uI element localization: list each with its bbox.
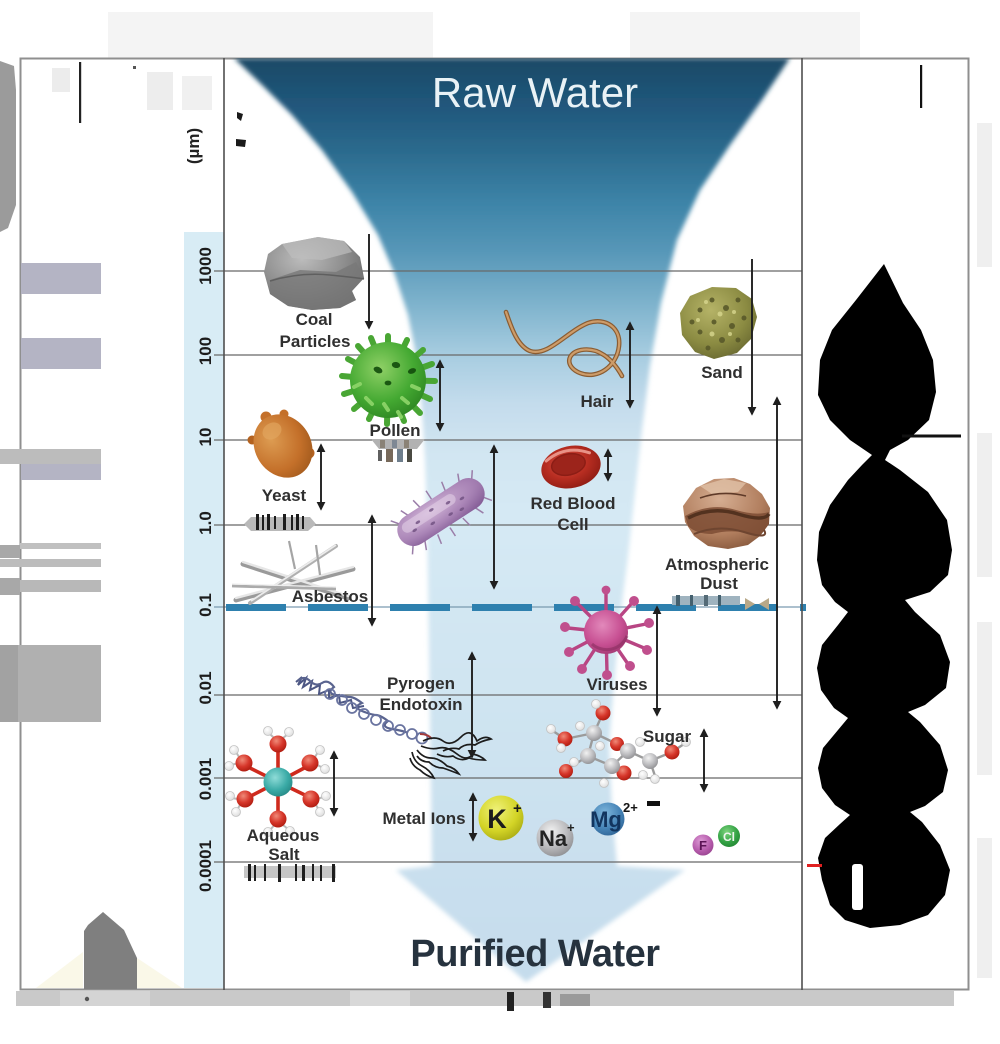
svg-text:Red Blood: Red Blood (531, 494, 616, 513)
svg-text:Particles: Particles (280, 332, 351, 351)
svg-text:+: + (513, 800, 522, 817)
svg-text:Salt: Salt (268, 845, 300, 864)
svg-text:Metal Ions: Metal Ions (382, 809, 465, 828)
svg-text:Raw Water: Raw Water (432, 69, 638, 116)
svg-text:1000: 1000 (196, 247, 215, 285)
svg-text:10: 10 (196, 428, 215, 447)
svg-text:1.0: 1.0 (196, 511, 215, 535)
svg-text:Sugar: Sugar (643, 727, 692, 746)
svg-text:Pollen: Pollen (369, 421, 420, 440)
svg-text:Coal: Coal (296, 310, 333, 329)
svg-text:(µm): (µm) (184, 128, 203, 164)
svg-text:K: K (487, 804, 507, 834)
svg-text:Aqueous: Aqueous (247, 826, 320, 845)
svg-text:Mg: Mg (590, 807, 622, 832)
svg-text:+: + (567, 820, 575, 835)
svg-text:Yeast: Yeast (262, 486, 307, 505)
svg-text:Sand: Sand (701, 363, 743, 382)
svg-text:Endotoxin: Endotoxin (379, 695, 462, 714)
svg-text:Hair: Hair (580, 392, 613, 411)
svg-text:0.0001: 0.0001 (196, 840, 215, 892)
svg-text:Cl: Cl (723, 830, 735, 844)
svg-text:Asbestos: Asbestos (292, 587, 369, 606)
svg-text:Viruses: Viruses (586, 675, 647, 694)
svg-text:0.01: 0.01 (196, 671, 215, 704)
svg-text:Atmospheric: Atmospheric (665, 555, 769, 574)
svg-text:100: 100 (196, 337, 215, 365)
svg-text:2+: 2+ (623, 800, 638, 815)
svg-text:Dust: Dust (700, 574, 738, 593)
svg-text:Pyrogen: Pyrogen (387, 674, 455, 693)
svg-text:Na: Na (539, 826, 568, 851)
svg-text:F: F (699, 838, 707, 853)
svg-text:Cell: Cell (557, 515, 588, 534)
svg-text:Purified Water: Purified Water (410, 933, 660, 975)
svg-text:0.1: 0.1 (196, 593, 215, 617)
svg-text:0.001: 0.001 (196, 758, 215, 801)
